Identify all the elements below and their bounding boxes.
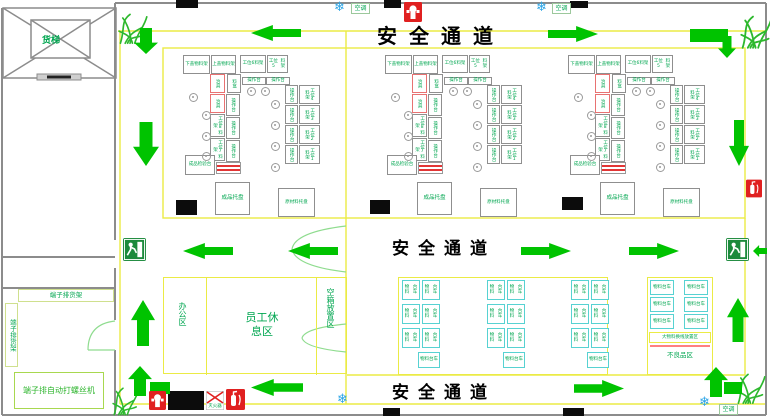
safety-exit-sign [123,237,146,262]
material-trolley: 物料台车 [650,280,674,295]
pillar [562,197,583,210]
material-trolley: 物料台车 [650,297,674,312]
flow-arrow-icon [288,243,338,259]
striped-marker-box [216,162,241,174]
material-rack: 工位1料架 [684,145,705,164]
material-trolley: 物料台车 [507,304,525,324]
operator-desk: 操作台 [670,105,683,124]
operator-desk: 操作台 [266,77,290,85]
flow-arrow-icon [521,243,571,259]
flow-arrow-icon [548,26,598,42]
operator-desk: 操作台 [487,145,500,164]
operator-desk: 操作台 [428,140,442,162]
pillar [563,408,584,416]
divider [206,278,207,375]
fixture-box: 治具 [412,94,427,113]
operator-desk: 操作台 [627,77,651,85]
material-rack: 工位2料架 [299,125,320,144]
flow-arrow-icon [251,25,301,41]
operator-desk: 操作台 [670,145,683,164]
material-rack: 工位8料架 [412,114,427,137]
flow-arrow-icon [131,300,155,346]
electrical-panel [168,391,204,410]
stool-icon [202,152,211,161]
material-rack: 工位3料架 [501,105,522,124]
raw-material-pallet: 原材料托盘 [480,188,517,217]
factory-floor-plan: 安全通道 安全通道 安全通道 货梯 端子排货架 端子排货架 端子排自动打螺丝机 … [0,0,770,418]
material-trolley: 物料台车 [587,352,609,368]
material-rack: 下盖物料架 [385,55,412,74]
stool-icon [473,142,482,151]
material-trolley: 物料台车 [507,328,525,348]
flow-arrow-icon [134,28,158,54]
material-rack: 工位6料架 [240,55,266,73]
flow-arrow-icon [729,120,749,166]
material-rack: 工位6料架 [442,55,468,73]
stool-icon [473,163,482,172]
stool-icon [632,87,641,96]
terminal-rack-top: 端子排货架 [18,289,114,302]
flow-arrow-icon [133,122,159,166]
air-conditioner-snowflake-icon: ❄ [334,1,345,14]
material-trolley: 物料台车 [422,280,440,300]
material-trolley: 物料台车 [571,328,589,348]
stool-icon [587,132,596,141]
fire-hydrant-icon [149,390,166,411]
extinguisher-sign-label: 灭火器 [206,404,224,409]
operator-desk: 操作台 [651,77,675,85]
stool-icon [587,111,596,120]
material-rack: 工位6料架 [625,55,651,73]
material-rack: 下盖物料架 [568,55,595,74]
parts-bin: 料盒 [227,74,241,93]
material-rack: 工位5料架 [652,55,673,73]
material-rack: 工位2料架 [684,125,705,144]
material-trolley: 物料台车 [591,304,609,324]
plant-icon [741,17,770,48]
stool-icon [656,163,665,172]
stool-icon [656,142,665,151]
stool-icon [271,142,280,151]
material-rack: 工位8料架 [210,114,225,137]
material-rack: 工位3料架 [299,105,320,124]
operator-desk: 操作台 [670,125,683,144]
material-trolley: 物料台车 [418,352,440,368]
production-cell-1: 下盖物料架上盖物料架工位6料架工位5料架操作台操作台料盒治具治具操作台操作台操作… [183,48,320,218]
corridor-title-middle: 安全通道 [392,234,496,259]
rest-area-line2: 息区 [216,325,308,339]
freight-elevator-label: 货梯 [42,33,60,46]
rest-area-label: 员工休 息区 [216,311,308,340]
material-trolley: 物料台车 [487,304,505,324]
stool-icon [271,121,280,130]
pillar [176,200,197,215]
pillar [370,200,390,214]
production-cell-3: 下盖物料架上盖物料架工位6料架工位5料架操作台操作台料盒治具治具操作台操作台操作… [568,48,705,218]
material-trolley: 物料台车 [402,280,420,300]
material-rack: 工位8料架 [595,114,610,137]
stool-icon [656,121,665,130]
material-trolley: 物料台车 [650,314,674,329]
material-rack: 工位1料架 [501,145,522,164]
stool-icon [247,87,256,96]
changeover-label: 大物料换线放置区 [649,332,711,343]
stool-icon [391,93,400,102]
stool-icon [202,111,211,120]
material-trolley: 物料台车 [591,328,609,348]
finished-goods-pallet: 成品托盘 [600,182,635,215]
fixture-box: 治具 [595,74,610,93]
terminal-rack-side: 端子排货架 [5,303,18,367]
material-rack: 工位3料架 [684,105,705,124]
material-trolley: 物料台车 [503,352,525,368]
material-trolley: 物料台车 [487,280,505,300]
fixture-box: 治具 [210,74,225,93]
operator-desk: 操作台 [428,94,442,116]
stool-icon [202,132,211,141]
material-rack: 上盖物料架 [413,55,438,74]
stool-icon [189,93,198,102]
stool-icon [261,87,270,96]
flow-arrow-icon [753,245,767,257]
ac-label: 空调 [351,3,370,14]
empty-box-area-label: 空箱放置区 [325,288,335,368]
stool-icon [449,87,458,96]
pillar [384,0,401,8]
flow-arrow-icon [727,298,749,342]
trolley-staging-zone: 物料台车物料台车物料台车物料台车物料台车物料台车物料台车 物料台车物料台车物料台… [398,277,608,375]
stool-icon [404,111,413,120]
corridor-title-bottom: 安全通道 [392,378,496,403]
operator-desk: 操作台 [226,94,240,116]
material-trolley: 物料台车 [507,280,525,300]
operator-desk: 操作台 [611,94,625,116]
operator-desk: 操作台 [285,105,298,124]
operator-desk: 操作台 [285,145,298,164]
operator-desk: 操作台 [487,85,500,104]
office-compound: 办公区 员工休 息区 空箱放置区 [163,277,347,374]
stool-icon [271,163,280,172]
material-rack: 工位2料架 [501,125,522,144]
elevator-door [37,74,81,80]
fire-extinguisher-icon [746,179,762,198]
material-trolley: 物料台车 [684,314,708,329]
air-conditioner-snowflake-icon: ❄ [536,1,547,14]
stool-icon [404,152,413,161]
stool-icon [463,87,472,96]
material-trolley: 物料台车 [684,297,708,312]
material-trolley: 物料台车 [571,280,589,300]
pillar [176,0,198,8]
material-rack: 工位5料架 [469,55,490,73]
divider [316,278,317,375]
rest-area-line1: 员工休 [216,311,308,325]
stool-icon [404,132,413,141]
material-trolley: 物料台车 [684,280,708,295]
material-rack: 上盖物料架 [596,55,621,74]
extinguisher-point-sign: 灭火器 [206,391,224,410]
air-conditioner-snowflake-icon: ❄ [699,396,710,409]
operator-desk: 操作台 [487,105,500,124]
air-conditioner-snowflake-icon: ❄ [337,393,348,406]
material-trolley: 物料台车 [402,304,420,324]
stool-icon [473,121,482,130]
flow-arrow-icon [183,243,233,259]
material-trolley: 物料台车 [422,304,440,324]
raw-material-pallet: 原材料托盘 [278,188,315,217]
operator-desk: 操作台 [285,85,298,104]
fixture-box: 治具 [210,94,225,113]
operator-desk: 操作台 [487,125,500,144]
stool-icon [473,100,482,109]
material-trolley: 物料台车 [571,304,589,324]
ac-label: 空调 [719,404,738,415]
striped-marker-box [418,162,443,174]
fire-hydrant-icon [404,2,422,22]
stool-icon [656,100,665,109]
material-rack: 工位5料架 [267,55,288,73]
stool-icon [587,152,596,161]
operator-desk: 操作台 [468,77,492,85]
operator-desk: 操作台 [611,117,625,139]
red-divider-line [650,345,710,347]
parts-bin: 料盒 [612,74,626,93]
raw-material-pallet: 原材料托盘 [663,188,700,217]
material-trolley: 物料台车 [487,328,505,348]
changeover-zone: 物料台车物料台车物料台车物料台车物料台车物料台车 大物料换线放置区 不良品区 [647,277,713,375]
material-rack: 下盖物料架 [183,55,210,74]
operator-desk: 操作台 [428,117,442,139]
operator-desk: 操作台 [611,140,625,162]
operator-desk: 操作台 [226,140,240,162]
production-cell-2: 下盖物料架上盖物料架工位6料架工位5料架操作台操作台料盒治具治具操作台操作台操作… [385,48,522,218]
flow-arrow-icon [251,379,303,396]
material-trolley: 物料台车 [402,328,420,348]
finished-goods-pallet: 成品托盘 [215,182,250,215]
material-rack: 工位4料架 [684,85,705,104]
pillar [383,408,400,416]
terminal-screw-machine: 端子排自动打螺丝机 [14,372,104,409]
finished-goods-pallet: 成品托盘 [417,182,452,215]
flow-arrow-icon [718,36,736,58]
operator-desk: 操作台 [285,125,298,144]
safety-exit-sign [726,237,749,262]
stool-icon [574,93,583,102]
parts-bin: 料盒 [429,74,443,93]
material-trolley: 物料台车 [591,280,609,300]
material-trolley: 物料台车 [422,328,440,348]
defective-area-label: 不良品区 [650,352,710,360]
operator-desk: 操作台 [670,85,683,104]
material-rack: 工位1料架 [299,145,320,164]
flow-arrow-bar [724,382,742,394]
stool-icon [646,87,655,96]
flow-arrow-icon [574,380,624,397]
fixture-box: 治具 [412,74,427,93]
fire-extinguisher-icon [226,389,245,410]
stool-icon [271,100,280,109]
pillar [570,1,588,8]
flow-arrow-icon [629,243,679,259]
ac-label: 空调 [552,3,571,14]
corridor-title-top: 安全通道 [377,20,505,49]
operator-desk: 操作台 [444,77,468,85]
material-rack: 上盖物料架 [211,55,236,74]
operator-desk: 操作台 [226,117,240,139]
office-area-label: 办公区 [177,302,187,352]
material-rack: 工位4料架 [299,85,320,104]
operator-desk: 操作台 [242,77,266,85]
fixture-box: 治具 [595,94,610,113]
material-rack: 工位4料架 [501,85,522,104]
striped-marker-box [601,162,626,174]
